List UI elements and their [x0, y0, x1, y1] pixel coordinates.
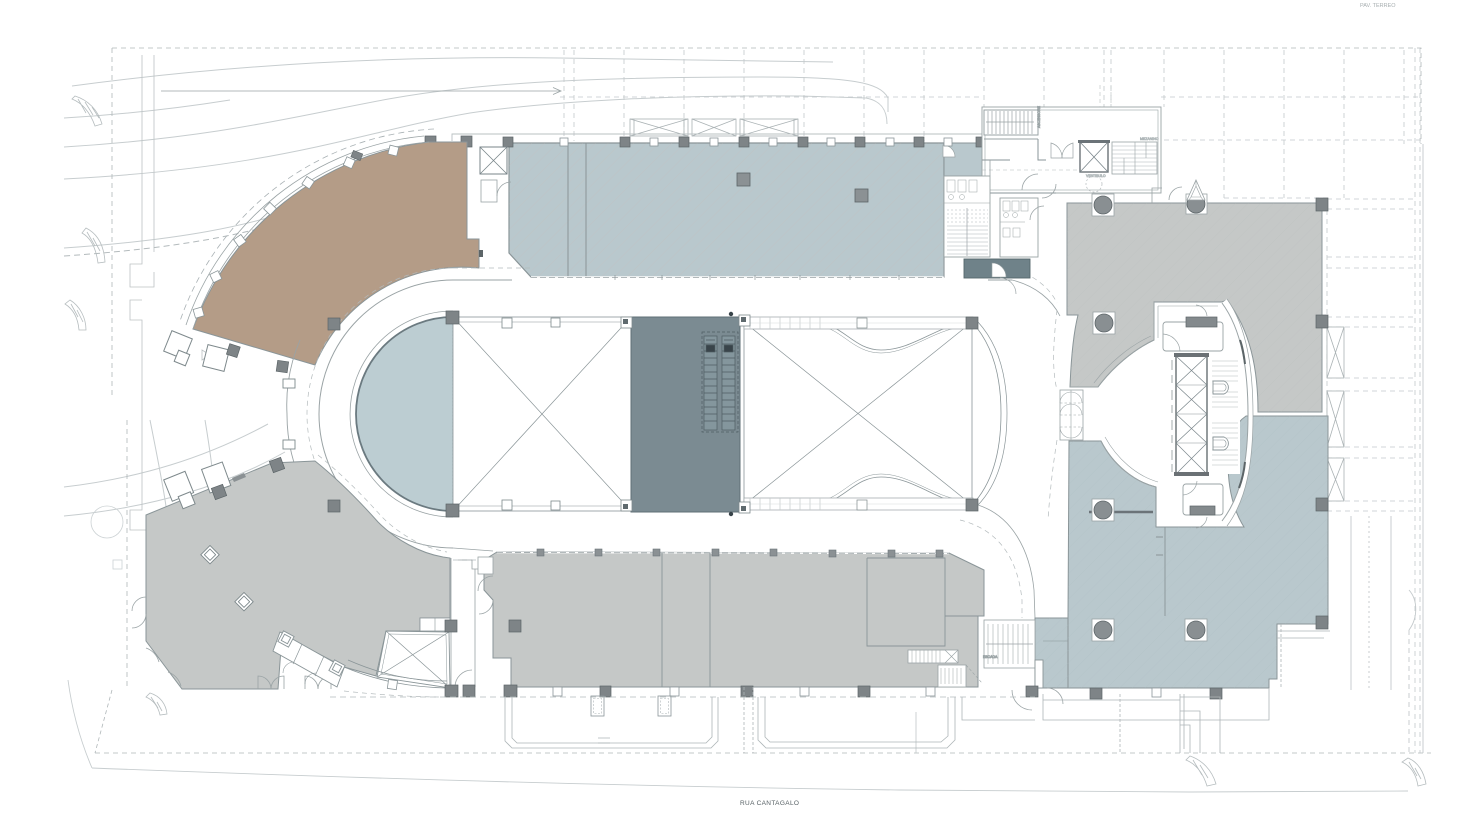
- svg-text:PAV. TERREO: PAV. TERREO: [1360, 3, 1396, 9]
- svg-text:VESTIBULO: VESTIBULO: [1086, 174, 1106, 178]
- svg-text:ESCADA: ESCADA: [983, 655, 998, 659]
- svg-text:ASCENSORE: ASCENSORE: [1037, 105, 1041, 128]
- svg-text:RUA CANTAGALO: RUA CANTAGALO: [740, 800, 799, 807]
- svg-text:MEZANINO: MEZANINO: [1140, 137, 1159, 141]
